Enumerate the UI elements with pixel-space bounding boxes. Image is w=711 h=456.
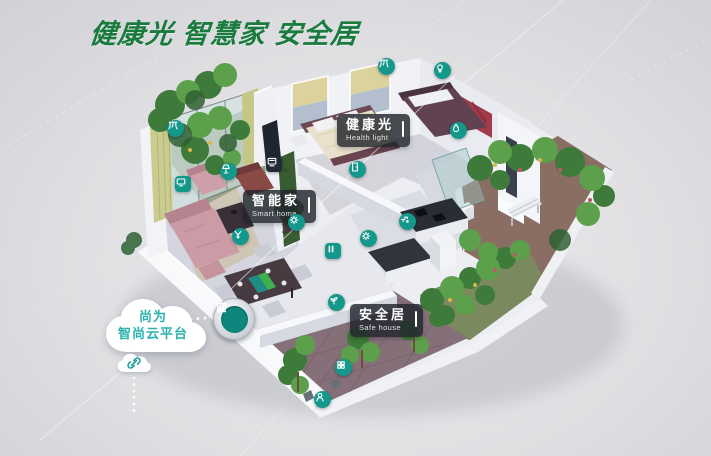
water-faucet-icon[interactable]	[399, 213, 416, 230]
label-smart-home[interactable]: 智能家 Smart home	[243, 190, 316, 223]
voice-speaker-icon[interactable]	[232, 228, 249, 245]
wall-screen-icon[interactable]	[266, 156, 282, 172]
scene-canvas: ;	[0, 0, 711, 456]
garden-irrigation-icon[interactable]	[328, 294, 345, 311]
tv-icon[interactable]	[175, 176, 191, 192]
cloud-platform-text: 尚为 智尚云平台	[98, 309, 208, 343]
bathroom-water-icon[interactable]	[450, 122, 467, 139]
cloud-line1: 尚为	[98, 309, 208, 326]
page-title: 健康光 智慧家 安全居	[88, 12, 361, 51]
label-safe-house-zh: 安全居	[359, 308, 407, 322]
label-health-light-en: Health light	[346, 133, 394, 142]
label-safe-house[interactable]: 安全居 Safe house	[350, 304, 423, 337]
label-health-light-zh: 健康光	[346, 118, 394, 132]
access-control-icon[interactable]	[314, 391, 331, 408]
label-safe-house-en: Safe house	[359, 323, 407, 332]
bedroom-curtain-icon[interactable]	[378, 58, 395, 75]
ceiling-light-icon[interactable]	[434, 62, 451, 79]
scene-switch-icon[interactable]	[288, 214, 305, 231]
label-health-light[interactable]: 健康光 Health light	[337, 114, 410, 147]
door-sensor-icon[interactable]	[349, 161, 366, 178]
balcony-curtain-icon[interactable]	[167, 120, 184, 137]
gas-sensor-icon[interactable]	[360, 230, 377, 247]
courtyard-keypad-icon[interactable]	[335, 359, 352, 376]
connection-lines	[0, 0, 711, 456]
switch-panel-icon[interactable]	[325, 243, 341, 259]
living-room-lamp-icon[interactable]	[220, 163, 237, 180]
label-smart-home-zh: 智能家	[252, 194, 300, 208]
gateway-icon	[221, 306, 248, 333]
cloud-link-icon	[115, 349, 153, 377]
smart-hub-device[interactable]	[213, 298, 255, 340]
cloud-line2: 智尚云平台	[98, 326, 208, 343]
